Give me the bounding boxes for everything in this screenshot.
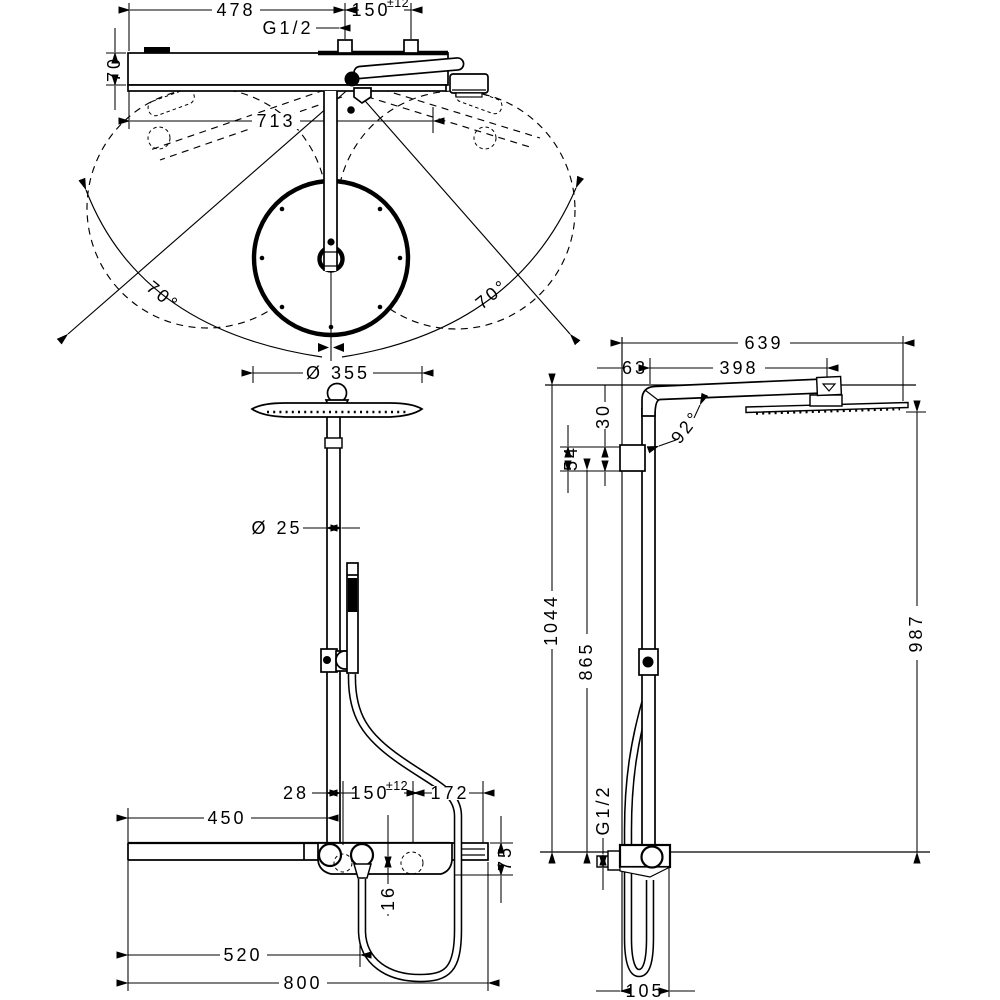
dim-520-label: 520: [223, 945, 262, 965]
shower-hose-front-view: [352, 674, 458, 978]
dim-150-tolerance: ±12: [387, 0, 409, 10]
dim-172-label: 172: [430, 783, 469, 803]
dim-150-label: 150: [351, 0, 390, 20]
dim-450-label: 450: [207, 808, 246, 828]
dim-713-label: 713: [256, 111, 295, 131]
dim-16-label: 16: [378, 885, 398, 911]
dim-28-label: 28: [283, 783, 309, 803]
dim-865-label: 865: [576, 641, 596, 680]
dim-1044-label: 1044: [541, 594, 561, 646]
dim-pipe-diameter-label: Ø 25: [251, 518, 302, 538]
dim-70-label: 70: [104, 56, 124, 82]
dim-150-front-tolerance: ±12: [386, 779, 408, 793]
control-knob-left: [319, 844, 341, 866]
technical-drawing-page: 70° 70° 713: [0, 0, 1000, 1000]
dim-30-label: 30: [593, 403, 613, 429]
overhead-shower-front-view: [252, 384, 422, 418]
dim-987-label: 987: [906, 613, 926, 652]
dim-478-label: 478: [216, 0, 255, 20]
shower-pipe-side-view: [642, 408, 655, 845]
dim-105-label: 105: [625, 981, 664, 1000]
thread-size-label-top: G1/2: [262, 18, 313, 38]
overhead-shower-top-view: [254, 91, 408, 361]
dim-63-label: 63: [622, 358, 648, 378]
dim-800-label: 800: [283, 973, 322, 993]
wall-connection-stub-left: [338, 40, 352, 53]
shower-tablet-side-view: [597, 845, 670, 877]
dim-639-label: 639: [744, 333, 783, 353]
shower-pipe-front-view: [325, 417, 342, 843]
dim-398-label: 398: [719, 358, 758, 378]
shower-tablet-front-view: [128, 843, 452, 878]
dim-head-diameter-label: Ø 355: [306, 363, 370, 383]
shower-system-dimension-drawing: 70° 70° 713: [0, 0, 1000, 1000]
control-knob-side-view: [642, 847, 663, 868]
dim-54-label: 54: [561, 445, 581, 471]
side-view: 639 63 398 30 54 92° 1044 865 987: [540, 333, 930, 1000]
front-view: Ø 355 Ø 25: [128, 363, 515, 993]
wall-bracket: [620, 445, 645, 471]
thread-size-label-side: G1/2: [593, 784, 613, 835]
dim-150-front-label: 150: [350, 783, 389, 803]
hose-outlet: [354, 864, 371, 878]
holder-pivot-knob: [345, 72, 360, 87]
dim-75-label: 75: [495, 845, 515, 871]
control-knob-right: [351, 844, 373, 866]
wall-connection-stub-right: [404, 40, 418, 53]
top-view: 70° 70° 713: [68, 0, 576, 361]
